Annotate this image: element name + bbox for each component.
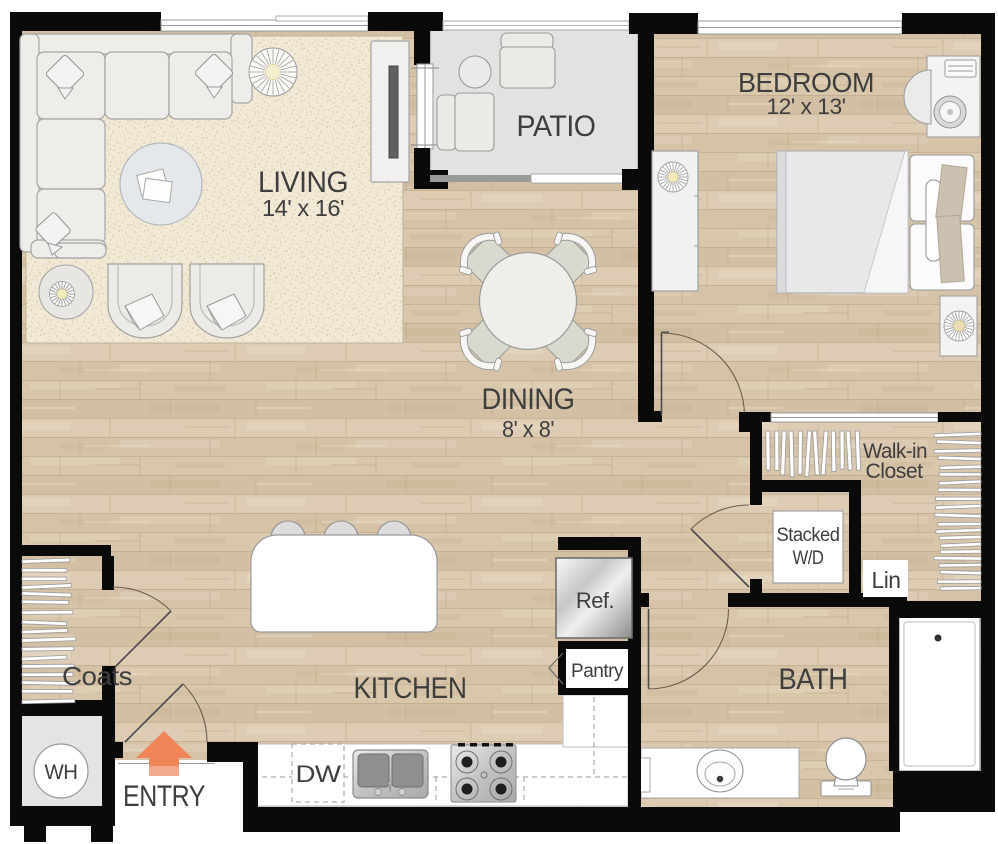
svg-text:Coats: Coats bbox=[62, 661, 133, 691]
svg-text:W/D: W/D bbox=[793, 548, 824, 569]
svg-text:Closet: Closet bbox=[866, 460, 924, 483]
svg-text:8' x 8': 8' x 8' bbox=[502, 416, 554, 442]
svg-text:12' x 13': 12' x 13' bbox=[767, 94, 846, 119]
svg-text:KITCHEN: KITCHEN bbox=[354, 672, 467, 705]
svg-text:Stacked: Stacked bbox=[777, 525, 840, 546]
svg-text:DINING: DINING bbox=[482, 383, 575, 416]
svg-text:DW: DW bbox=[296, 761, 342, 788]
svg-text:ENTRY: ENTRY bbox=[123, 780, 205, 813]
svg-text:14' x 16': 14' x 16' bbox=[262, 195, 344, 221]
svg-text:BATH: BATH bbox=[779, 663, 848, 696]
svg-text:Pantry: Pantry bbox=[571, 661, 624, 682]
svg-text:WH: WH bbox=[45, 761, 78, 784]
svg-text:Lin: Lin bbox=[872, 567, 901, 593]
svg-text:Ref.: Ref. bbox=[576, 588, 614, 613]
svg-text:PATIO: PATIO bbox=[517, 110, 596, 143]
